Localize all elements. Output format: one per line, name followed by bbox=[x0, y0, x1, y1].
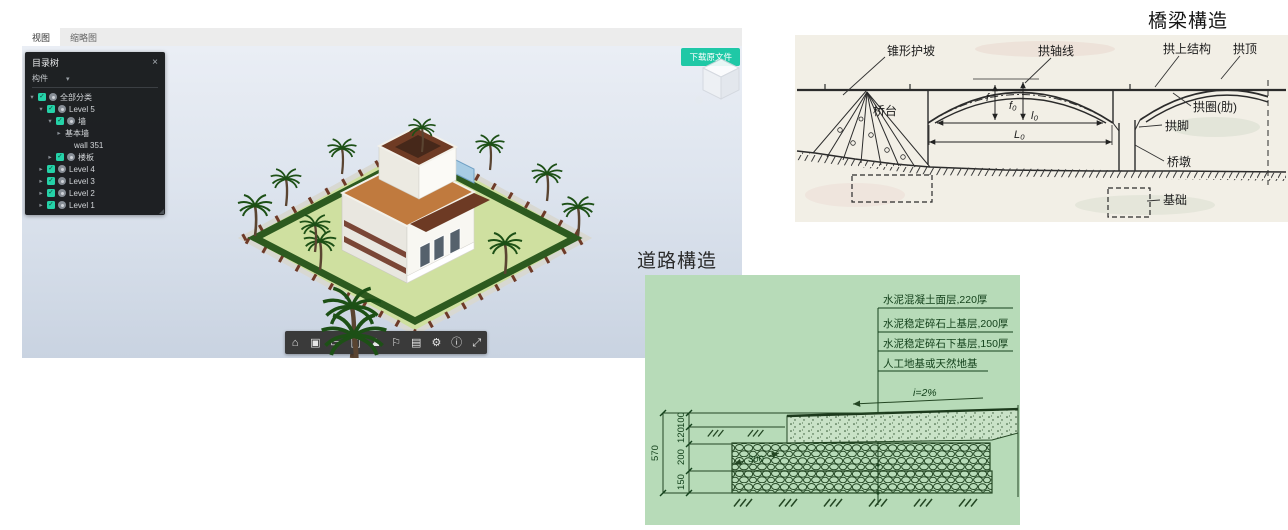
tree-item[interactable]: wall 351 bbox=[25, 139, 165, 151]
tree-item[interactable]: ▸基本墙 bbox=[25, 127, 165, 139]
expand-arrow-icon[interactable]: ▾ bbox=[38, 105, 44, 113]
tree-item-label: 基本墙 bbox=[65, 128, 89, 139]
visibility-checkbox[interactable]: ✓ bbox=[38, 93, 46, 101]
tree-item[interactable]: ▾✓Level 5 bbox=[25, 103, 165, 115]
expand-arrow-icon[interactable]: ▸ bbox=[47, 153, 53, 161]
road-dim-100: 100 bbox=[676, 412, 687, 428]
visibility-checkbox[interactable]: ✓ bbox=[47, 201, 55, 209]
chevron-down-icon: ▾ bbox=[66, 75, 70, 83]
expand-arrow-icon[interactable]: ▸ bbox=[38, 177, 44, 185]
bridge-label-cone-slope: 锥形护坡 bbox=[887, 44, 935, 58]
bridge-label-arch-foot: 拱脚 bbox=[1165, 118, 1189, 133]
bridge-dim-f0: f₀ bbox=[1009, 100, 1017, 112]
tree-panel-title: 目录树 bbox=[32, 56, 59, 69]
bridge-label-arch-axis: 拱轴线 bbox=[1038, 43, 1074, 58]
bridge-dim-l0: l₀ bbox=[1031, 110, 1038, 122]
expand-arrow-icon[interactable]: ▸ bbox=[38, 189, 44, 197]
tab-thumbnail[interactable]: 缩略图 bbox=[60, 28, 107, 46]
view-cube[interactable] bbox=[694, 54, 742, 108]
road-diagram-title: 道路構造 bbox=[637, 246, 717, 273]
visibility-checkbox[interactable]: ✓ bbox=[56, 153, 64, 161]
tree-item-label: 全部分类 bbox=[60, 92, 92, 103]
bridge-dim-L0: L₀ bbox=[1014, 129, 1025, 141]
visibility-checkbox[interactable]: ✓ bbox=[47, 177, 55, 185]
bridge-label-crown: 拱顶 bbox=[1233, 42, 1257, 56]
road-dim-200: 200 bbox=[676, 449, 687, 465]
bridge-diagram: 锥形护坡 拱轴线 拱上结构 拱顶 桥台 拱圈(肋) 拱脚 桥墩 基础 f f₀ … bbox=[795, 35, 1288, 222]
roam-icon[interactable]: ⚐ bbox=[387, 334, 405, 352]
directory-tree-panel: 目录树 × 构件 ▾ ▾✓全部分类▾✓Level 5▾✓墙▸基本墙wall 35… bbox=[25, 52, 165, 215]
tree-item-label: Level 3 bbox=[69, 177, 95, 186]
tree-item-label: 楼板 bbox=[78, 152, 94, 163]
home-icon[interactable]: ⌂ bbox=[286, 334, 304, 352]
tree-item-label: wall 351 bbox=[74, 141, 103, 150]
close-icon[interactable]: × bbox=[152, 58, 158, 68]
tree-items: ▾✓全部分类▾✓Level 5▾✓墙▸基本墙wall 351▸✓楼板▸✓Leve… bbox=[25, 88, 165, 211]
tree-item[interactable]: ▸✓Level 1 bbox=[25, 199, 165, 211]
resize-handle[interactable] bbox=[159, 209, 164, 214]
expand-arrow-icon[interactable]: ▸ bbox=[38, 201, 44, 209]
visibility-checkbox[interactable]: ✓ bbox=[47, 105, 55, 113]
bridge-label-superstructure: 拱上结构 bbox=[1163, 41, 1211, 56]
bridge-diagram-title: 橋梁構造 bbox=[1148, 6, 1228, 33]
eye-icon[interactable] bbox=[58, 105, 66, 113]
tree-item[interactable]: ▸✓Level 4 bbox=[25, 163, 165, 175]
tree-item-label: Level 4 bbox=[69, 165, 95, 174]
component-filter-dropdown[interactable]: 构件 ▾ bbox=[32, 73, 158, 88]
bridge-label-foundation: 基础 bbox=[1163, 193, 1187, 207]
eye-icon[interactable] bbox=[58, 189, 66, 197]
bridge-label-arch-ring: 拱圈(肋) bbox=[1193, 99, 1237, 114]
bridge-label-abutment: 桥台 bbox=[873, 103, 897, 118]
settings-icon[interactable]: ⚙ bbox=[427, 334, 445, 352]
tree-item[interactable]: ▸✓Level 3 bbox=[25, 175, 165, 187]
visibility-checkbox[interactable]: ✓ bbox=[47, 189, 55, 197]
road-layer-surface: 水泥混凝土面层,220厚 bbox=[883, 293, 988, 306]
eye-icon[interactable] bbox=[49, 93, 57, 101]
snapshot-icon[interactable]: ▣ bbox=[306, 334, 324, 352]
road-layer-upper-base: 水泥稳定碎石上基层,200厚 bbox=[883, 317, 1009, 330]
tree-item-label: Level 5 bbox=[69, 105, 95, 114]
tab-view[interactable]: 视图 bbox=[22, 28, 60, 46]
section-icon[interactable]: ◫ bbox=[347, 334, 365, 352]
walkthrough-icon[interactable]: ♟ bbox=[367, 334, 385, 352]
tree-item[interactable]: ▸✓楼板 bbox=[25, 151, 165, 163]
road-dim-120: 120 bbox=[676, 427, 687, 443]
viewer-canvas[interactable]: 下载原文件 目录树 × 构件 ▾ bbox=[22, 46, 742, 358]
toolbar-notch bbox=[368, 327, 371, 330]
page-root: 视图 缩略图 bbox=[0, 0, 1288, 530]
eye-icon[interactable] bbox=[58, 177, 66, 185]
visibility-checkbox[interactable]: ✓ bbox=[56, 117, 64, 125]
tree-item-label: 墙 bbox=[78, 116, 86, 127]
road-dim-150: 150 bbox=[676, 474, 687, 490]
view-cube-home-icon[interactable] bbox=[695, 96, 703, 104]
expand-arrow-icon[interactable]: ▸ bbox=[56, 129, 62, 137]
road-layer-subgrade: 人工地基或天然地基 bbox=[883, 357, 978, 370]
visibility-checkbox[interactable]: ✓ bbox=[47, 165, 55, 173]
road-slope-label: i=2% bbox=[913, 387, 937, 399]
tree-item[interactable]: ▾✓墙 bbox=[25, 115, 165, 127]
eye-icon[interactable] bbox=[67, 153, 75, 161]
fullscreen-icon[interactable]: ⤢ bbox=[468, 334, 486, 352]
eye-icon[interactable] bbox=[58, 165, 66, 173]
expand-arrow-icon[interactable]: ▾ bbox=[47, 117, 53, 125]
road-dim-total: 570 bbox=[650, 445, 661, 461]
bim-viewer-window: 视图 缩略图 bbox=[22, 28, 742, 358]
expand-arrow-icon[interactable]: ▸ bbox=[38, 165, 44, 173]
tree-item[interactable]: ▾✓全部分类 bbox=[25, 91, 165, 103]
properties-icon[interactable]: ▤ bbox=[407, 334, 425, 352]
info-icon[interactable]: ⓘ bbox=[448, 334, 466, 352]
road-diagram: 水泥混凝土面层,220厚 水泥稳定碎石上基层,200厚 水泥稳定碎石下基层,15… bbox=[645, 275, 1020, 525]
bridge-label-pier: 桥墩 bbox=[1167, 155, 1191, 169]
expand-arrow-icon[interactable]: ▾ bbox=[29, 93, 35, 101]
measure-icon[interactable]: ▭ bbox=[326, 334, 344, 352]
eye-icon[interactable] bbox=[67, 117, 75, 125]
road-layer-lower-base: 水泥稳定碎石下基层,150厚 bbox=[883, 337, 1009, 350]
tree-item-label: Level 2 bbox=[69, 189, 95, 198]
tree-item-label: Level 1 bbox=[69, 201, 95, 210]
eye-icon[interactable] bbox=[58, 201, 66, 209]
viewer-tabbar: 视图 缩略图 bbox=[22, 28, 742, 47]
viewer-toolbar: ⌂▣▭◫♟⚐▤⚙ⓘ⤢ bbox=[285, 331, 487, 354]
tree-item[interactable]: ▸✓Level 2 bbox=[25, 187, 165, 199]
road-dim-300: 300 bbox=[748, 454, 764, 465]
filter-label: 构件 bbox=[32, 73, 48, 84]
